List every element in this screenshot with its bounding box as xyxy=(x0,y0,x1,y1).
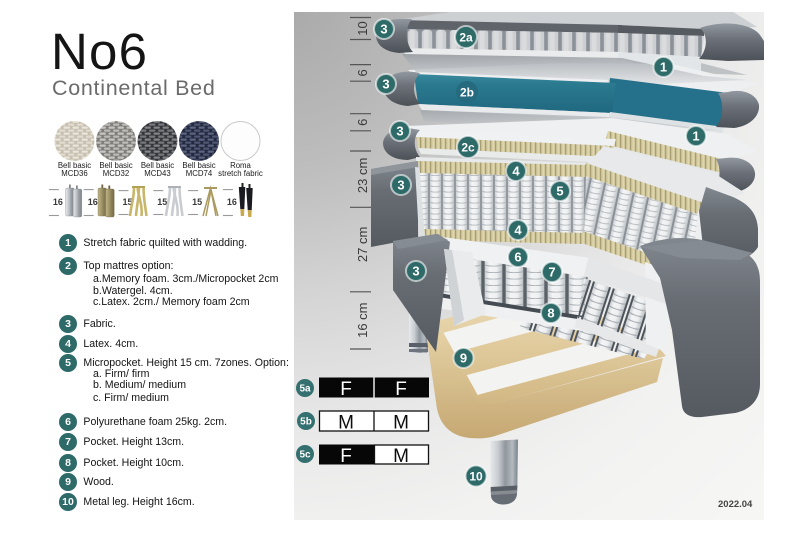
svg-text:3: 3 xyxy=(396,124,403,139)
svg-text:16: 16 xyxy=(88,197,98,207)
svg-text:5b: 5b xyxy=(300,417,312,428)
svg-text:M: M xyxy=(338,413,354,434)
svg-text:27 cm: 27 cm xyxy=(355,227,370,262)
svg-text:5c: 5c xyxy=(299,450,311,461)
svg-text:1: 1 xyxy=(660,60,667,75)
svg-text:2b: 2b xyxy=(460,86,474,100)
svg-text:16: 16 xyxy=(53,197,63,207)
svg-text:F: F xyxy=(340,446,352,467)
svg-text:M: M xyxy=(393,413,409,434)
svg-text:M: M xyxy=(393,446,409,467)
svg-text:3: 3 xyxy=(412,264,419,279)
svg-text:15: 15 xyxy=(192,197,202,207)
svg-text:8: 8 xyxy=(547,306,554,321)
svg-text:6: 6 xyxy=(355,69,370,76)
svg-text:6: 6 xyxy=(355,119,370,126)
svg-text:7: 7 xyxy=(548,265,555,280)
svg-text:F: F xyxy=(395,379,407,400)
svg-text:3: 3 xyxy=(397,178,404,193)
svg-text:4: 4 xyxy=(514,223,522,238)
svg-text:4: 4 xyxy=(512,164,520,179)
svg-text:23 cm: 23 cm xyxy=(355,158,370,193)
svg-text:16: 16 xyxy=(227,197,237,207)
svg-text:1: 1 xyxy=(692,129,699,144)
svg-text:2022.04: 2022.04 xyxy=(718,499,753,510)
svg-text:10: 10 xyxy=(469,470,483,484)
svg-text:2a: 2a xyxy=(459,31,473,45)
svg-text:3: 3 xyxy=(380,22,387,37)
svg-text:15: 15 xyxy=(157,197,167,207)
svg-text:6: 6 xyxy=(514,250,521,265)
svg-text:3: 3 xyxy=(382,77,389,92)
svg-text:F: F xyxy=(340,379,352,400)
svg-text:16 cm: 16 cm xyxy=(355,302,370,337)
svg-text:2c: 2c xyxy=(461,141,475,155)
svg-text:10: 10 xyxy=(355,21,370,35)
svg-text:5: 5 xyxy=(556,184,563,199)
svg-text:9: 9 xyxy=(460,351,467,366)
svg-text:5a: 5a xyxy=(299,384,311,395)
